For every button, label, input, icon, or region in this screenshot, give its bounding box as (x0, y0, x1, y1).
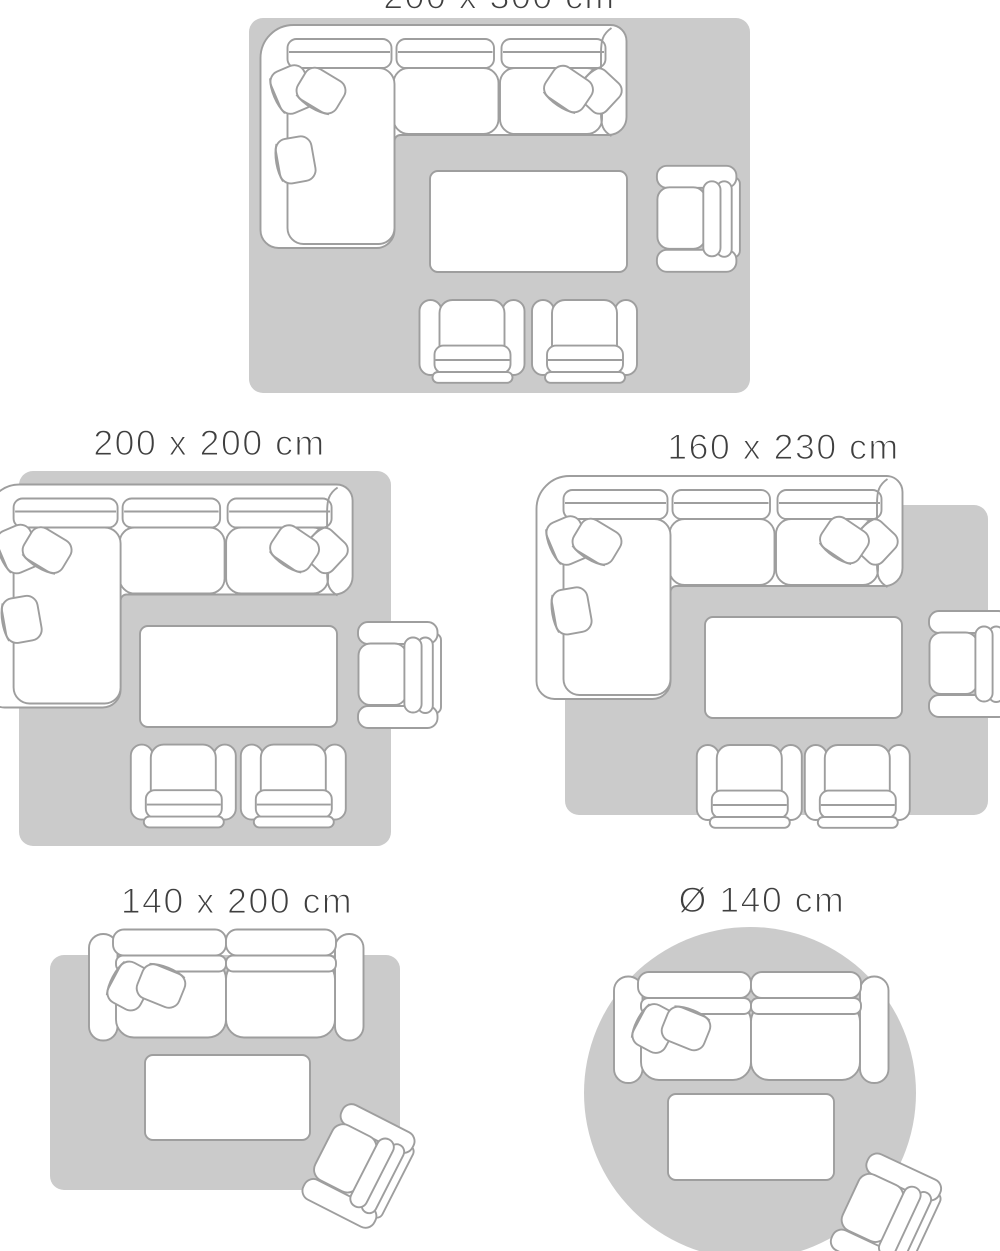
svg-text:160 x 230 cm: 160 x 230 cm (667, 427, 899, 467)
svg-text:200 x 300 cm: 200 x 300 cm (383, 0, 615, 17)
svg-text:200 x 200 cm: 200 x 200 cm (93, 423, 325, 463)
svg-text:Ø 140 cm: Ø 140 cm (679, 880, 846, 920)
svg-text:140 x 200 cm: 140 x 200 cm (121, 881, 353, 921)
